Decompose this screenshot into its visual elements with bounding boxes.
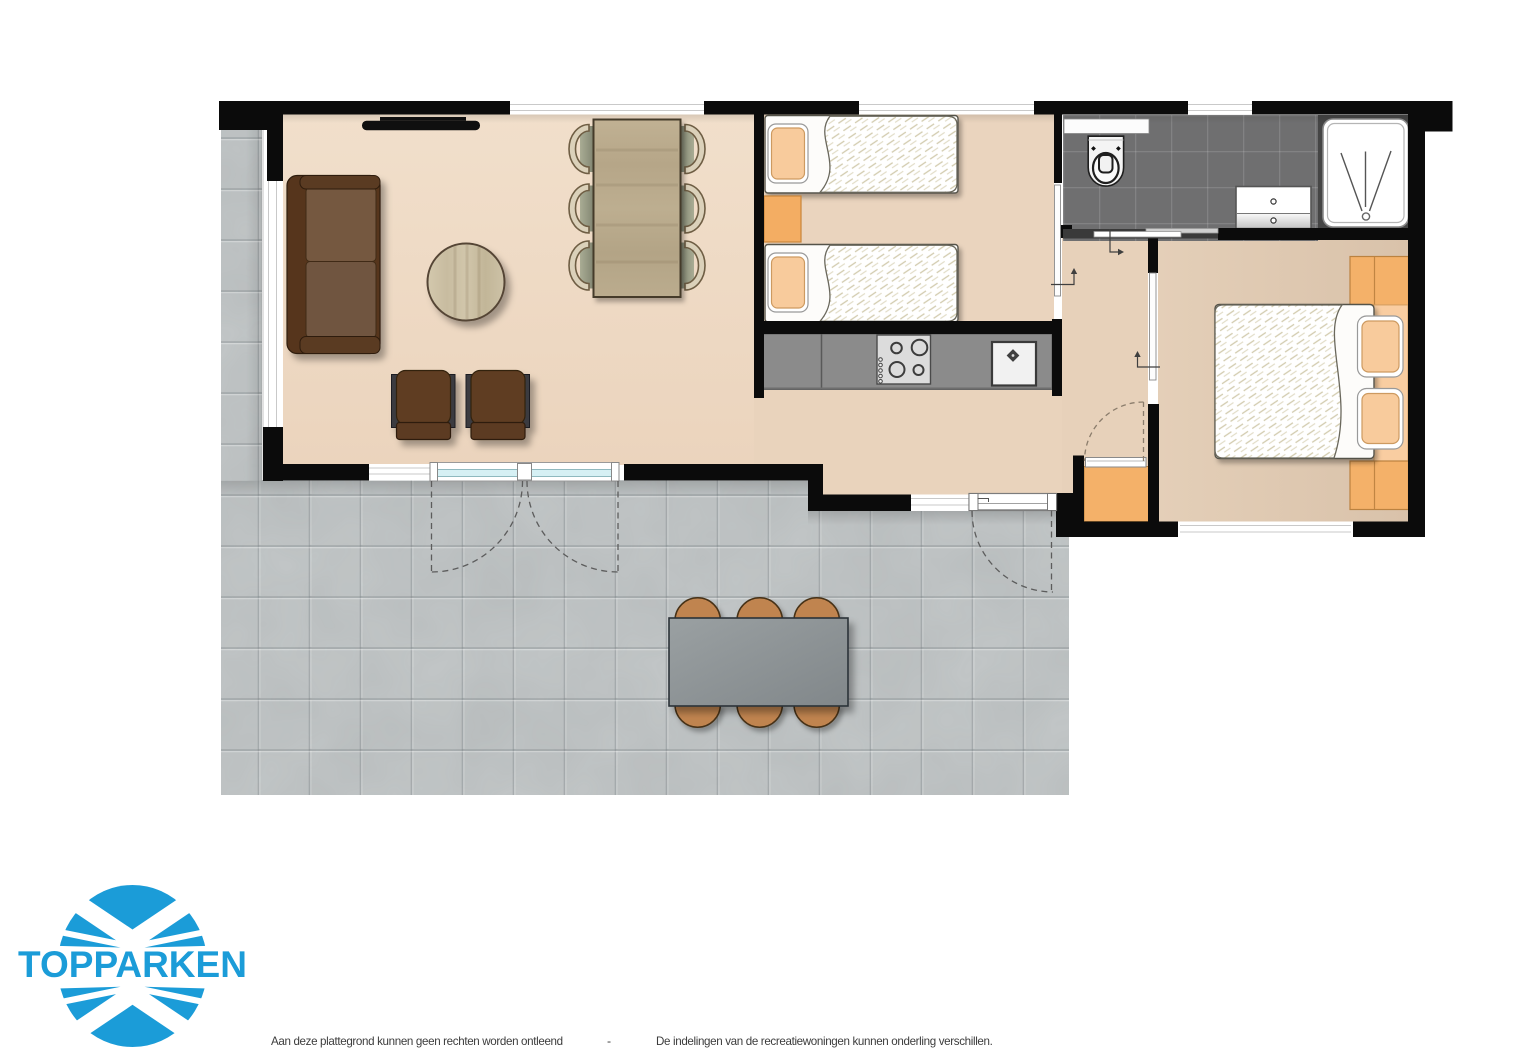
svg-text:TOPPARKEN: TOPPARKEN <box>18 944 247 985</box>
svg-text:De indelingen van de recreatie: De indelingen van de recreatiewoningen k… <box>656 1035 993 1048</box>
svg-text:Aan deze plattegrond kunnen ge: Aan deze plattegrond kunnen geen rechten… <box>271 1035 563 1048</box>
svg-text:-: - <box>607 1034 611 1048</box>
